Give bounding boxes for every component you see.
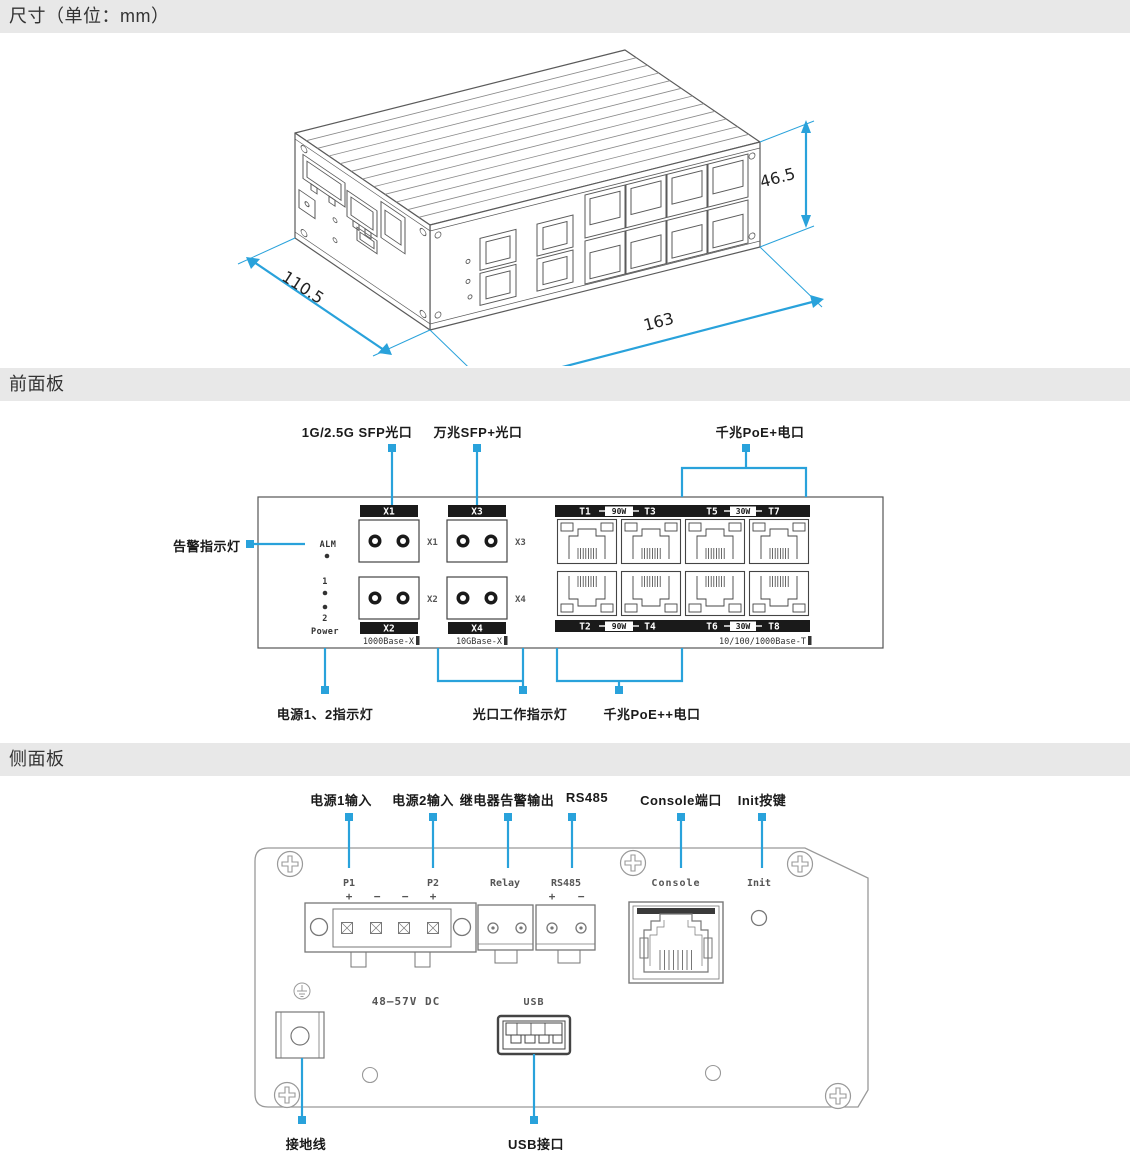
section-header-side-panel: 侧面板 bbox=[0, 743, 1130, 776]
port-label-t1: T1 bbox=[579, 507, 591, 518]
p2-label: P2 bbox=[427, 878, 439, 889]
callout-power1-input: 电源1输入 bbox=[310, 790, 372, 809]
callout-power2-input: 电源2输入 bbox=[392, 790, 454, 809]
standard-1000base-x: 1000Base-X bbox=[363, 637, 415, 647]
dimension-length: 163 bbox=[641, 309, 675, 335]
rs485-label: RS485 bbox=[551, 878, 581, 889]
callout-relay-output: 继电器告警输出 bbox=[460, 790, 555, 809]
port-label-t8: T8 bbox=[768, 622, 780, 633]
sfp-bar-x1: X1 bbox=[383, 507, 395, 518]
sfp-side-label-x4: X4 bbox=[515, 595, 526, 605]
standard-1000base-t: 10/100/1000Base-T bbox=[719, 637, 806, 647]
console-label: Console bbox=[651, 878, 700, 889]
poe-power-30w-bottom: 30W bbox=[736, 622, 751, 631]
callout-console-port: Console端口 bbox=[640, 790, 722, 809]
callout-init-button: Init按键 bbox=[738, 790, 787, 809]
p2-plus: + bbox=[430, 890, 437, 903]
dimensions-title: 尺寸（单位：mm） bbox=[0, 0, 1130, 33]
callout-power-led: 电源1、2指示灯 bbox=[277, 704, 373, 723]
port-label-t2: T2 bbox=[579, 622, 590, 633]
power-led-caption: Power bbox=[311, 627, 339, 637]
panel-hole-right bbox=[706, 1066, 721, 1081]
port-label-t5: T5 bbox=[706, 507, 718, 518]
sfp-bar-x4: X4 bbox=[471, 624, 483, 635]
port-label-t6: T6 bbox=[706, 622, 718, 633]
poe-power-30w-top: 30W bbox=[736, 507, 751, 516]
port-label-t3: T3 bbox=[644, 507, 656, 518]
sfp-side-label-x1: X1 bbox=[427, 538, 438, 548]
callout-poe-plus-plus: 千兆PoE++电口 bbox=[604, 704, 701, 723]
p2-minus: − bbox=[402, 890, 409, 903]
p1-plus: + bbox=[346, 890, 353, 903]
callout-rs485: RS485 bbox=[566, 790, 608, 805]
isometric-drawing: 110.5 163 46.5 bbox=[0, 36, 1130, 366]
callout-poe-plus: 千兆PoE+电口 bbox=[716, 422, 805, 441]
power2-led bbox=[323, 605, 328, 610]
section-header-front-panel: 前面板 bbox=[0, 368, 1130, 401]
section-header-dimensions: 尺寸（单位：mm） bbox=[0, 0, 1130, 33]
power1-led bbox=[323, 591, 328, 596]
callout-usb-port: USB接口 bbox=[508, 1134, 564, 1153]
init-button bbox=[752, 911, 767, 926]
p1-label: P1 bbox=[343, 878, 355, 889]
dimension-depth: 110.5 bbox=[279, 267, 328, 308]
voltage-label: 48–57V DC bbox=[372, 995, 441, 1008]
rs485-minus: − bbox=[578, 890, 585, 903]
callout-alarm-led: 告警指示灯 bbox=[173, 536, 241, 555]
sfp-side-label-x2: X2 bbox=[427, 595, 438, 605]
sfp-bar-x3: X3 bbox=[471, 507, 483, 518]
front-panel-drawing: ALM 1 2 Power X1 X3 X2 X4 bbox=[0, 404, 1130, 734]
standard-10gbase-x: 10GBase-X bbox=[456, 637, 503, 647]
callout-ground-wire: 接地线 bbox=[286, 1134, 327, 1153]
rs485-plus: + bbox=[549, 890, 556, 903]
power1-led-label: 1 bbox=[322, 577, 328, 587]
power2-led-label: 2 bbox=[322, 614, 328, 624]
port-label-t7: T7 bbox=[768, 507, 779, 518]
relay-label: Relay bbox=[490, 878, 520, 889]
side-panel-drawing: P1 P2 + − − + Relay RS485 bbox=[0, 778, 1130, 1164]
side-panel-title: 侧面板 bbox=[0, 743, 1130, 776]
panel-hole-left bbox=[363, 1068, 378, 1083]
dimension-height: 46.5 bbox=[758, 164, 797, 192]
callout-sfp-1g: 1G/2.5G SFP光口 bbox=[302, 422, 413, 441]
init-label: Init bbox=[747, 877, 771, 889]
callout-fiber-led: 光口工作指示灯 bbox=[473, 704, 568, 723]
callout-sfp-10g: 万兆SFP+光口 bbox=[434, 422, 523, 441]
alm-led bbox=[325, 554, 330, 559]
alm-led-label: ALM bbox=[320, 540, 337, 550]
manual-page: 尺寸（单位：mm） 前面板 侧面板 bbox=[0, 0, 1130, 1164]
front-panel-title: 前面板 bbox=[0, 368, 1130, 401]
port-label-t4: T4 bbox=[644, 622, 656, 633]
poe-power-90w-bottom: 90W bbox=[612, 622, 627, 631]
sfp-bar-x2: X2 bbox=[383, 624, 394, 635]
poe-power-90w-top: 90W bbox=[612, 507, 627, 516]
usb-label: USB bbox=[523, 997, 544, 1008]
sfp-side-label-x3: X3 bbox=[515, 538, 526, 548]
p1-minus: − bbox=[374, 890, 381, 903]
